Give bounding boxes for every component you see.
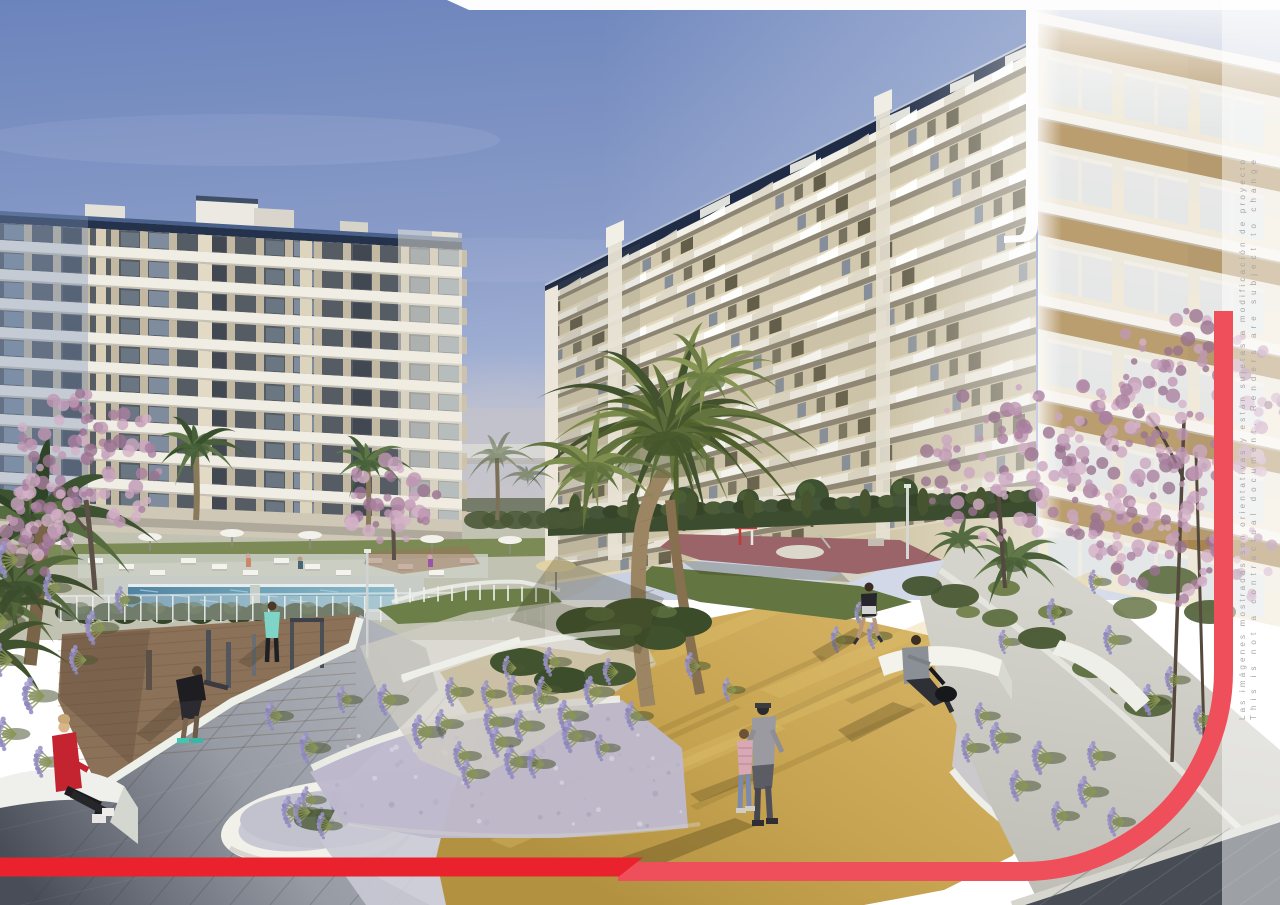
svg-text:Las imágenes mostradas son ori: Las imágenes mostradas son orientativas … <box>1238 159 1247 720</box>
svg-text:This is not a contractual docu: This is not a contractual document. Rend… <box>1249 159 1258 720</box>
